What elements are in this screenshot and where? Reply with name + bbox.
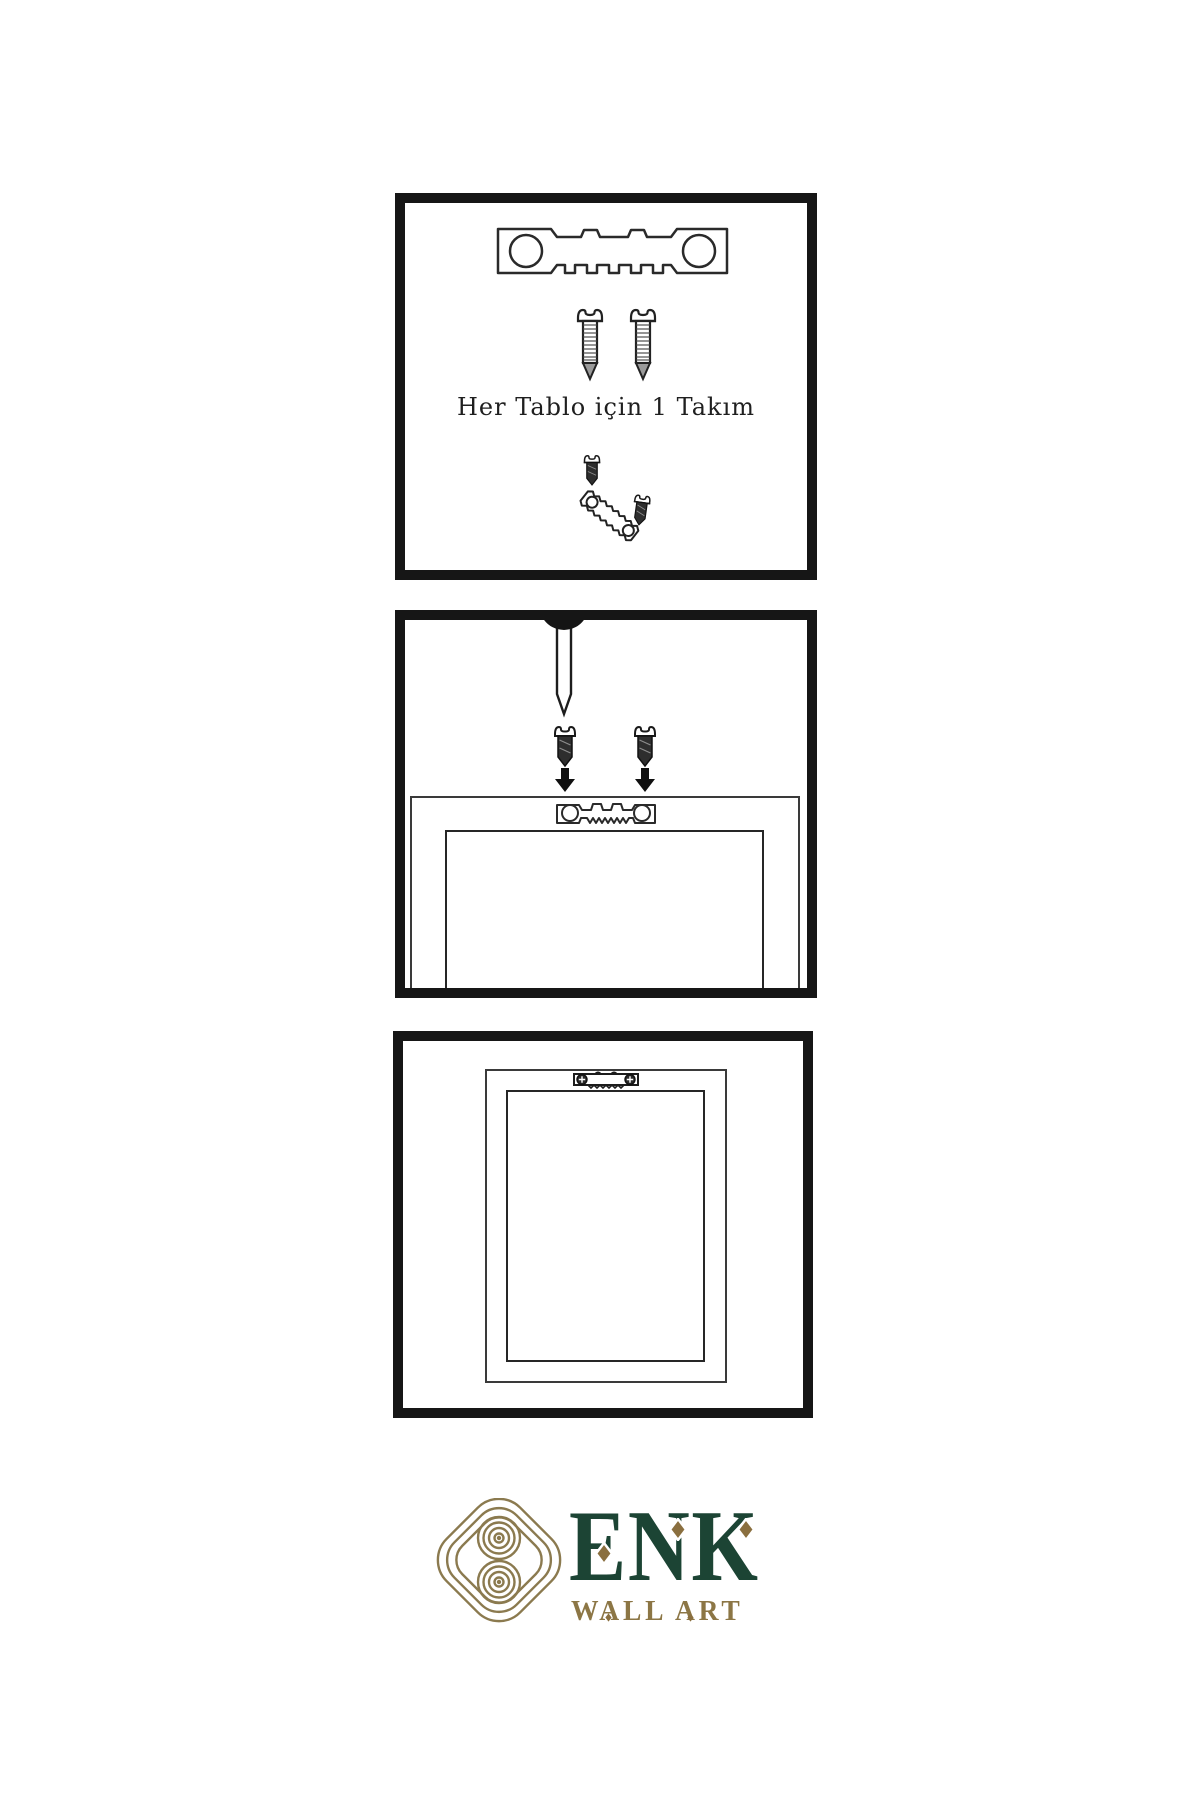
- arrow-down-icon: [635, 768, 655, 792]
- brand-wordmark: ENK WALL ART: [569, 1496, 789, 1636]
- nail-icon: [540, 612, 588, 720]
- screw-icon: [628, 305, 658, 383]
- kit-caption: Her Tablo için 1 Takım: [405, 393, 807, 421]
- step-hang-panel: [393, 1031, 813, 1418]
- brand-logo: ENK WALL ART: [435, 1496, 795, 1636]
- screw-icon: [575, 305, 605, 383]
- frame-back-inner-edge: [506, 1090, 705, 1362]
- sawtooth-hanger-icon: [495, 222, 730, 280]
- frame-back-inner-edge: [445, 830, 764, 998]
- dark-screw-icon: [553, 724, 577, 768]
- brand-tagline: WALL ART: [571, 1595, 744, 1628]
- dark-screw-icon: [630, 491, 653, 529]
- dark-screw-icon: [583, 451, 601, 489]
- sawtooth-hanger-icon: [555, 797, 657, 831]
- diamond-accent-icon: [737, 1518, 755, 1541]
- dark-screw-icon: [633, 724, 657, 768]
- step-install-panel: [395, 610, 817, 998]
- diamond-dot-icon: [605, 1613, 612, 1622]
- mounted-sawtooth-hanger-icon: [573, 1071, 639, 1091]
- arrow-down-icon: [555, 768, 575, 792]
- diamond-dot-icon: [687, 1613, 694, 1622]
- instruction-sheet: Her Tablo için 1 Takım: [0, 0, 1200, 1800]
- knot-logo-icon: [435, 1498, 563, 1623]
- hanger-assembly-diagram: [576, 448, 686, 560]
- diamond-accent-icon: [669, 1518, 687, 1541]
- step-kit-panel: Her Tablo için 1 Takım: [395, 193, 817, 580]
- diamond-accent-icon: [595, 1542, 613, 1565]
